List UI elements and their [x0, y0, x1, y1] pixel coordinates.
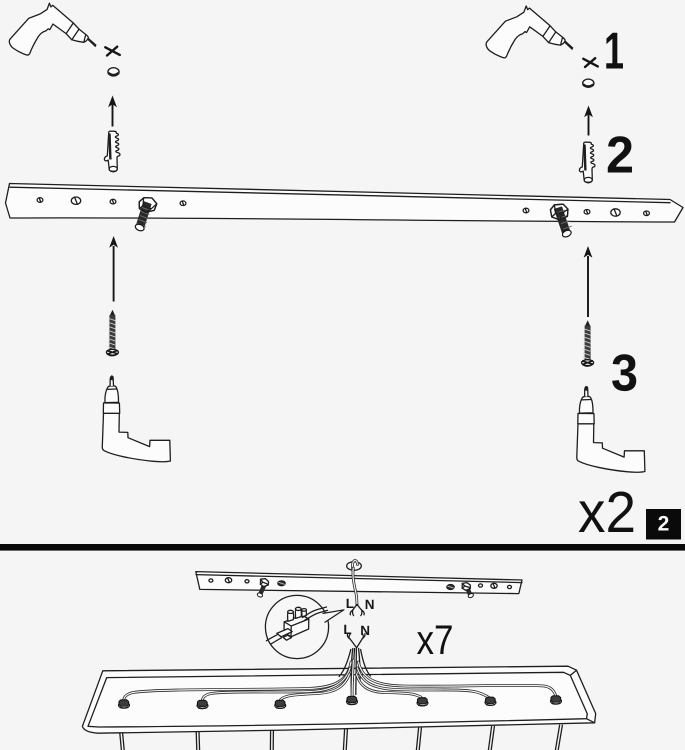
svg-text:N: N: [365, 597, 375, 612]
svg-text:L: L: [346, 596, 354, 611]
svg-text:1: 1: [604, 23, 624, 81]
svg-text:x2: x2: [578, 480, 636, 545]
svg-text:x7: x7: [417, 616, 454, 663]
svg-text:3: 3: [611, 345, 638, 403]
svg-text:2: 2: [606, 127, 634, 185]
svg-text:2: 2: [658, 513, 670, 536]
